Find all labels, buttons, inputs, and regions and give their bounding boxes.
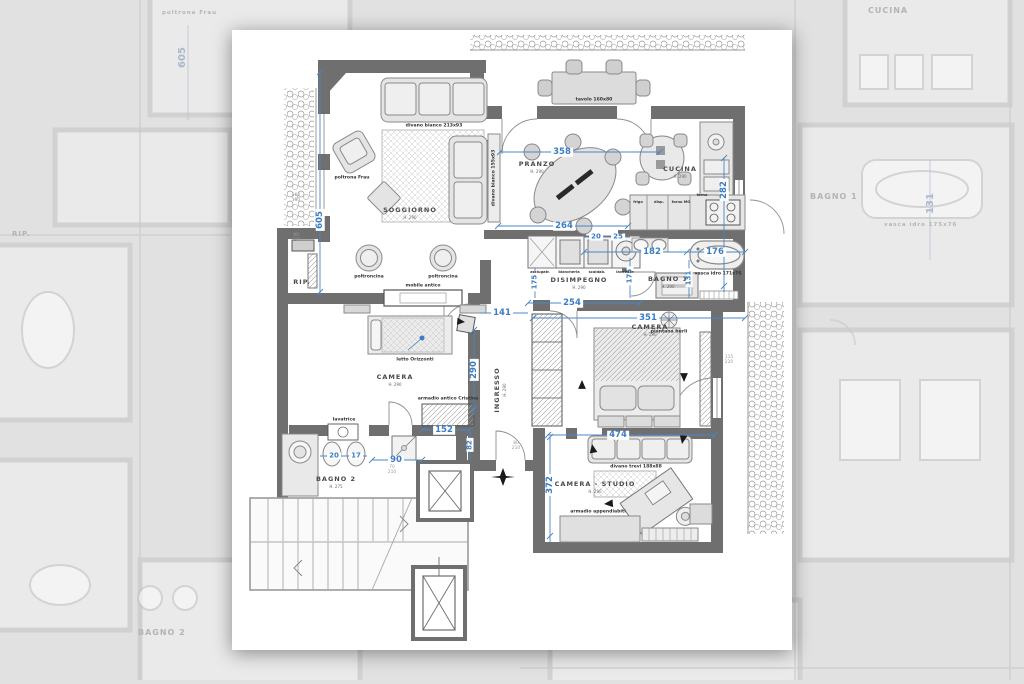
dim-175a: 175	[532, 273, 539, 292]
dim-182: 182	[641, 248, 663, 257]
pranzo-table	[520, 132, 631, 237]
dim-141: 141	[491, 309, 513, 318]
dim-176: 176	[704, 248, 726, 257]
bg-label-poltrona: poltrona Frau	[162, 10, 217, 16]
bg-label-bagno1: BAGNO 1	[810, 192, 858, 201]
label-divano-bianco-155: divano bianco 155x93	[492, 150, 497, 207]
elevator-1	[418, 462, 472, 520]
dim-131: 131	[686, 269, 693, 288]
label-mobile-antico: mobile antico	[405, 284, 440, 289]
dim-20a: 20	[589, 234, 603, 241]
note-window-90-230: 90 230	[292, 233, 300, 243]
room-label-ingresso: INGRESSOH. 290	[493, 367, 507, 412]
label-armadio-appendiabiti: armadio appendiabiti	[570, 510, 626, 515]
elevator-2	[413, 557, 465, 639]
label-piantana-burli: piantana burli	[651, 330, 687, 335]
dim-282: 282	[720, 179, 729, 201]
label-vasca-idro: vasca idro 171x76	[694, 272, 741, 277]
dim-254: 254	[561, 299, 583, 308]
note-door-80-210: 80 210	[512, 441, 520, 451]
floor-plan-drawing	[232, 30, 792, 650]
room-label-camera-1: CAMERAH. 290	[377, 373, 414, 387]
dim-152: 152	[433, 426, 455, 435]
dim-290: 290	[470, 359, 479, 381]
label-letto-orizzonti: letto Orizzonti	[396, 358, 433, 363]
label-tavolo-160x80: tavolo 160x80	[576, 98, 613, 103]
label-scaldabagno: scaldab.	[589, 270, 606, 274]
label-poltrona-frau: poltrona Frau	[334, 176, 369, 181]
label-divano-trevi: divano trevi 188x88	[610, 465, 662, 470]
dim-82: 82	[467, 438, 474, 452]
label-armadio-antico-cristina: armadio antico Cristina	[418, 397, 479, 402]
dim-474: 474	[607, 431, 629, 440]
label-forno-mo: forno MO	[672, 200, 691, 204]
floor-plan-sheet: SOGGIORNOH. 290 PRANZOH. 290 CUCINAH. 29…	[232, 30, 792, 650]
room-label-soggiorno: SOGGIORNOH. 290	[383, 206, 437, 220]
soggiorno-furniture	[331, 78, 500, 306]
bg-label-vasca: vasca idro 175x76	[884, 222, 957, 228]
dim-605: 605	[316, 209, 325, 231]
note-window-115-220: 115 220	[725, 355, 733, 365]
dim-372: 372	[546, 474, 555, 496]
dim-17: 17	[349, 453, 363, 460]
dim-25: 25	[611, 234, 625, 241]
label-asciugatrice: asciugatr.	[530, 270, 550, 274]
label-biancheria: biancheria	[558, 270, 579, 274]
bg-label-bagno2: BAGNO 2	[138, 628, 186, 637]
note-window-160-150: 160 150	[292, 193, 300, 203]
dim-264: 264	[553, 222, 575, 231]
label-frigo: frigo	[633, 200, 643, 204]
room-label-pranzo: PRANZOH. 290	[519, 160, 555, 174]
label-divano-bianco-213: divano bianco 213x93	[406, 124, 463, 129]
bg-label-rip: RIP.	[12, 230, 31, 238]
label-lavatrice: lavatrice	[616, 270, 634, 274]
label-forno: forno	[697, 193, 708, 197]
bg-dim-605: 605	[177, 47, 188, 68]
note-door-70-210: 70 210	[388, 465, 396, 475]
label-poltroncina-2: poltroncina	[428, 275, 458, 280]
room-label-camera-studio: CAMERA - STUDIOH. 290	[555, 480, 636, 494]
room-label-disimpegno: DISIMPEGNOH. 290	[551, 276, 608, 290]
room-label-cucina: CUCINAH. 290	[663, 165, 697, 179]
dim-20b: 20	[327, 453, 341, 460]
label-poltroncina-1: poltroncina	[354, 275, 384, 280]
dim-90: 90	[388, 456, 404, 465]
room-label-bagno1: BAGNO 1H. 290	[648, 275, 688, 289]
bg-label-cucina: CUCINA	[868, 6, 908, 15]
label-lavatrice-bagno2: lavatrice	[333, 418, 356, 423]
dim-358: 358	[551, 148, 573, 157]
label-disp: disp.	[654, 200, 664, 204]
room-label-bagno2: BAGNO 2H. 275	[316, 475, 356, 489]
room-label-rip: RIP.	[293, 278, 310, 286]
dim-351: 351	[637, 314, 659, 323]
bg-dim-131: 131	[925, 193, 936, 214]
